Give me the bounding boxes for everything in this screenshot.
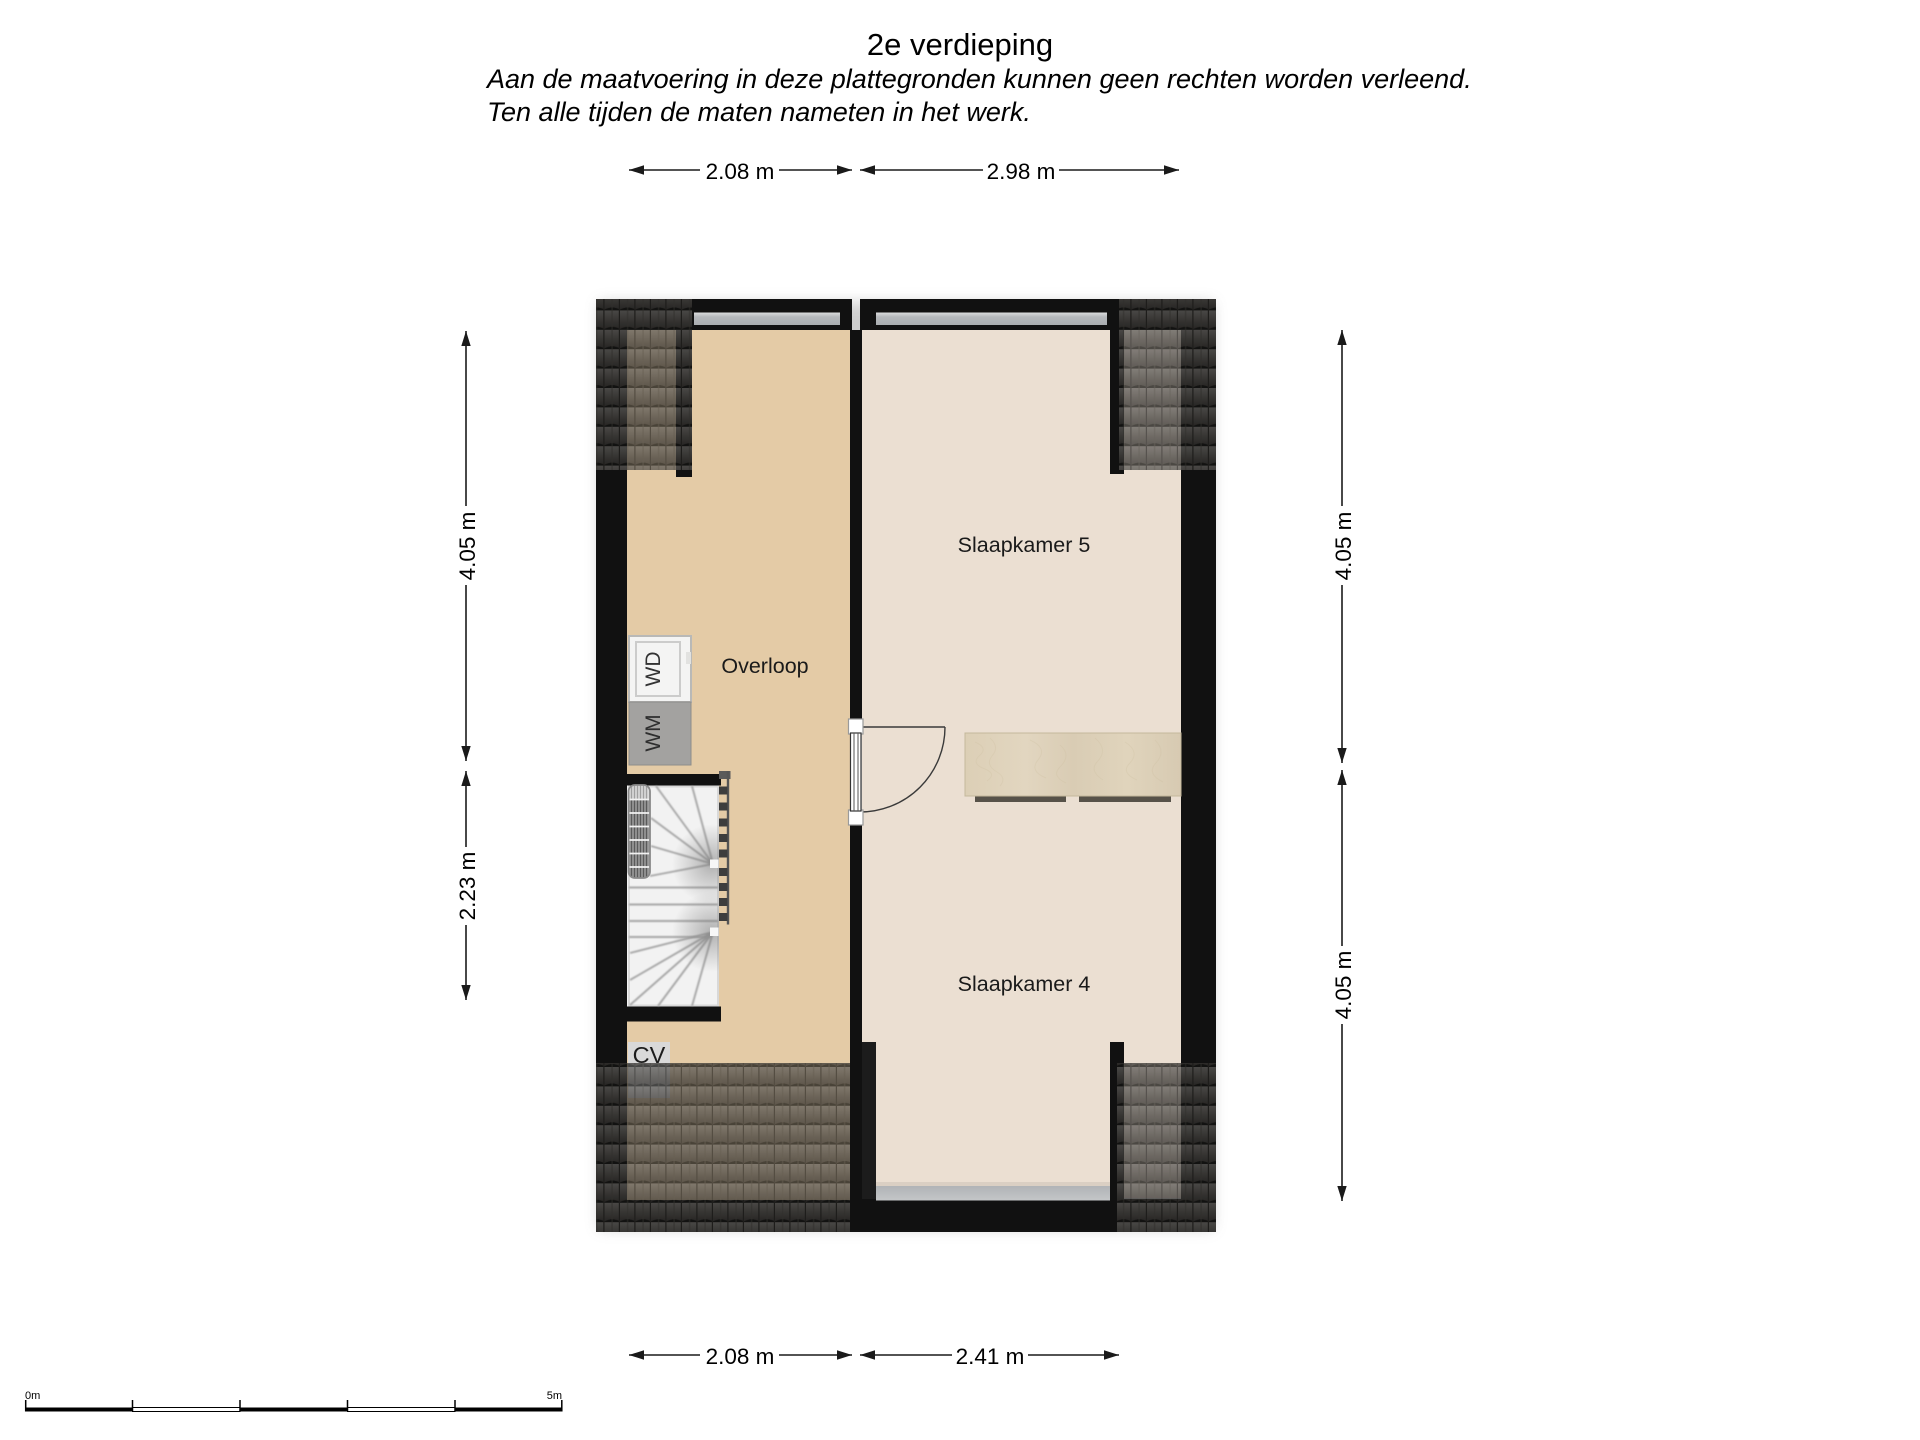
- svg-text:2.08 m: 2.08 m: [706, 1344, 775, 1369]
- svg-text:2e verdieping: 2e verdieping: [867, 27, 1053, 62]
- svg-text:2.23 m: 2.23 m: [455, 852, 480, 921]
- svg-text:WD: WD: [642, 652, 665, 687]
- svg-text:4.05 m: 4.05 m: [1331, 951, 1356, 1020]
- svg-text:WM: WM: [642, 714, 665, 751]
- svg-text:4.05 m: 4.05 m: [1331, 512, 1356, 581]
- svg-text:Slaapkamer 5: Slaapkamer 5: [958, 533, 1091, 557]
- svg-text:5m: 5m: [547, 1390, 562, 1402]
- svg-text:Slaapkamer 4: Slaapkamer 4: [958, 972, 1091, 996]
- svg-text:4.05 m: 4.05 m: [455, 512, 480, 581]
- svg-text:2.41 m: 2.41 m: [956, 1344, 1025, 1369]
- svg-text:2.98 m: 2.98 m: [987, 159, 1056, 184]
- svg-text:Aan de maatvoering in deze pla: Aan de maatvoering in deze plattegronden…: [485, 64, 1472, 94]
- svg-text:0m: 0m: [25, 1390, 40, 1402]
- svg-text:2.08 m: 2.08 m: [706, 159, 775, 184]
- svg-text:Overloop: Overloop: [721, 654, 808, 678]
- svg-text:Ten alle tijden de maten namet: Ten alle tijden de maten nameten in het …: [487, 97, 1031, 127]
